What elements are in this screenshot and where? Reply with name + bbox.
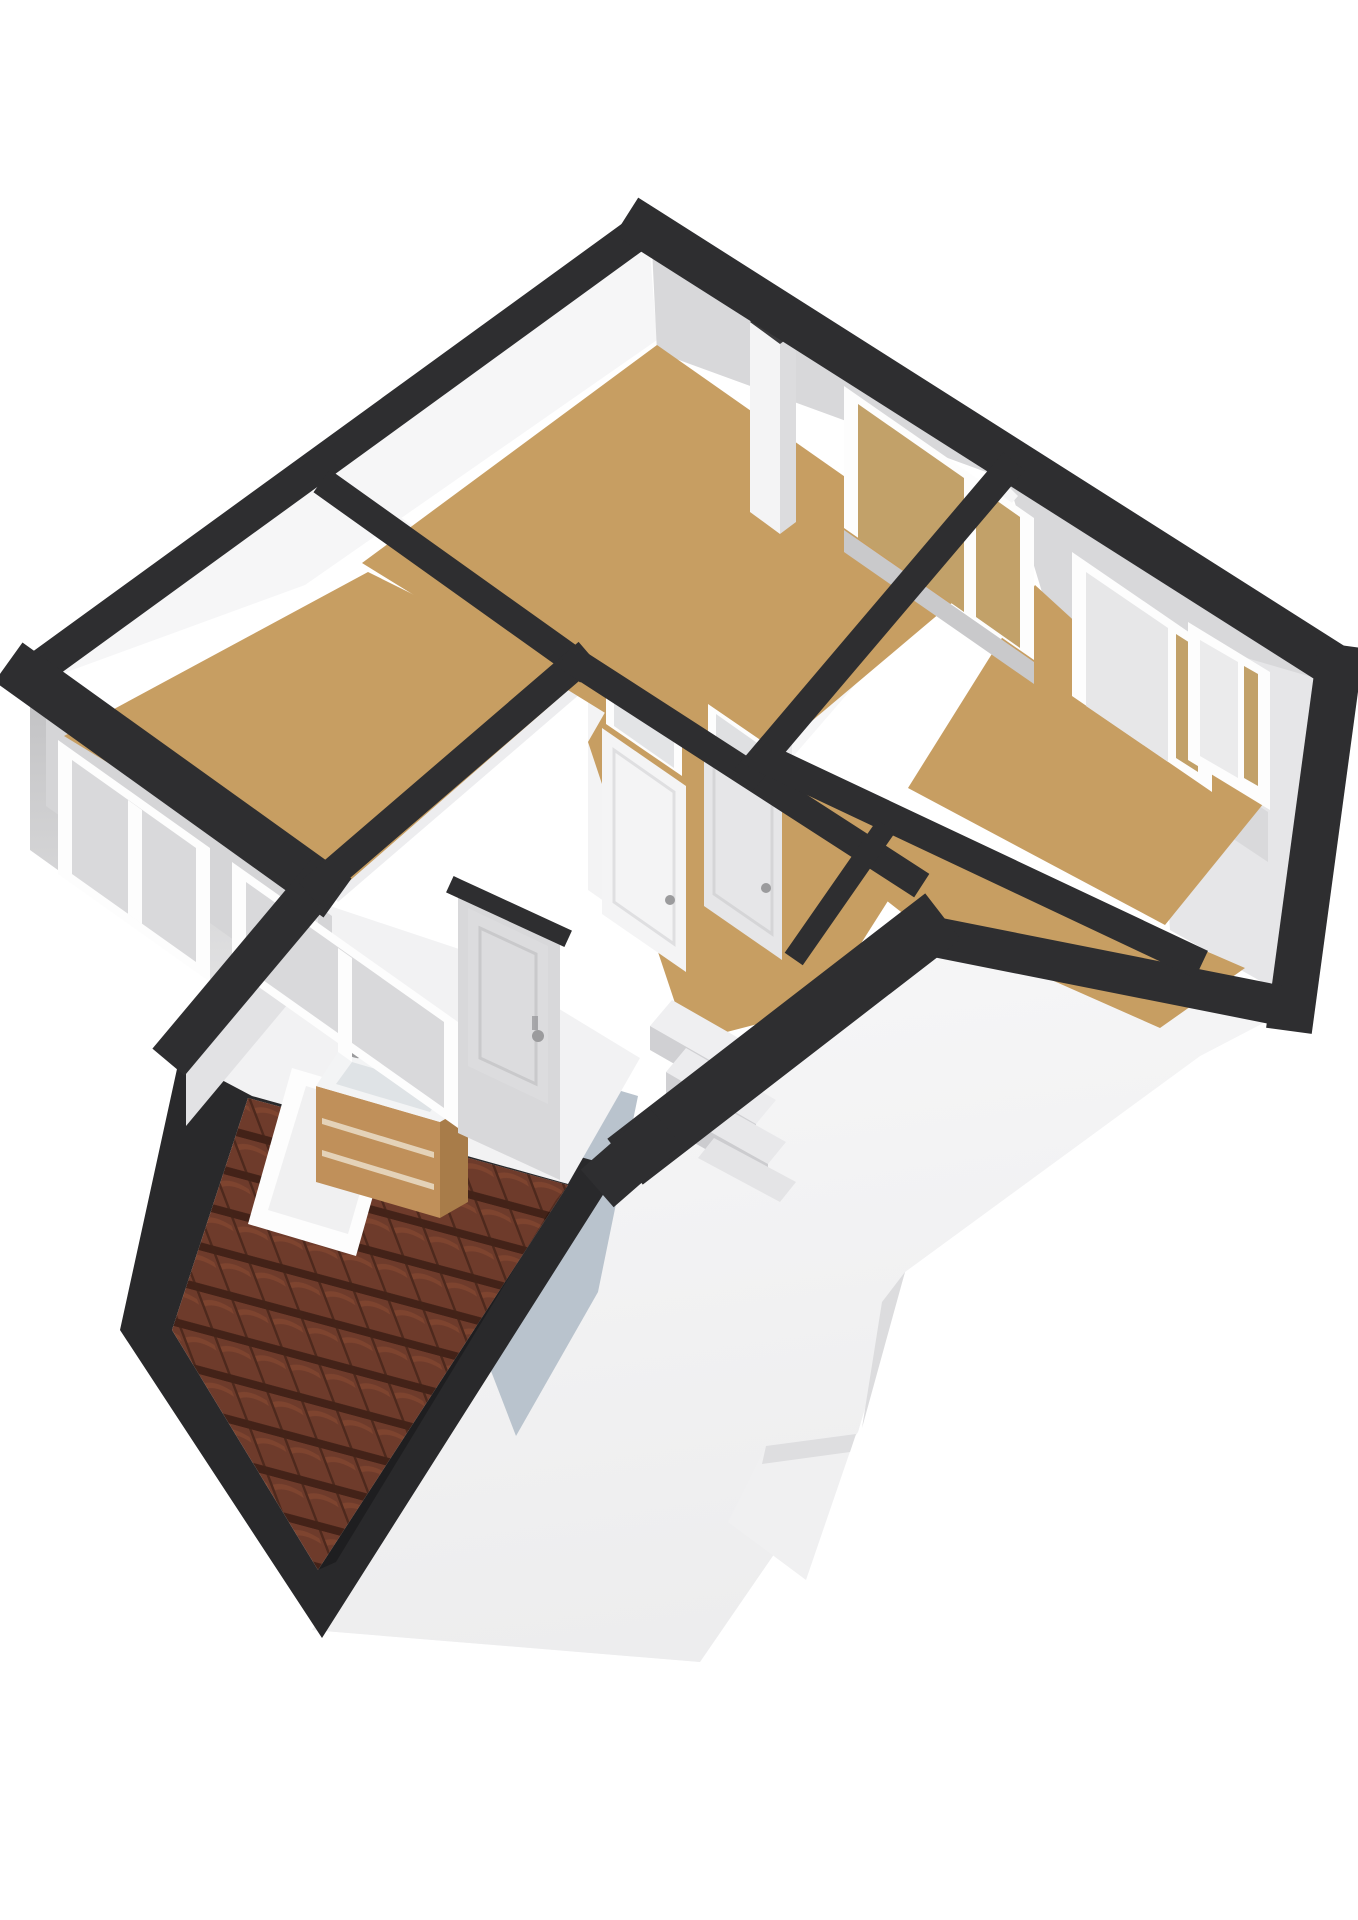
window-curtain: [1200, 640, 1238, 778]
chimney-left-face: [750, 322, 780, 534]
door-handle: [761, 883, 771, 893]
window-mullion: [338, 948, 352, 1062]
door-handle: [665, 895, 675, 905]
door-handle: [532, 1030, 544, 1042]
window-mullion: [128, 800, 142, 924]
window-glass-side: [1244, 666, 1258, 786]
floorplan-stage: [0, 0, 1358, 1920]
floorplan-3d: [0, 0, 1358, 1920]
door-handle-plate: [532, 1016, 538, 1030]
cap-exterior-annex-join: [616, 1144, 648, 1172]
chimney-right-face: [780, 332, 796, 534]
